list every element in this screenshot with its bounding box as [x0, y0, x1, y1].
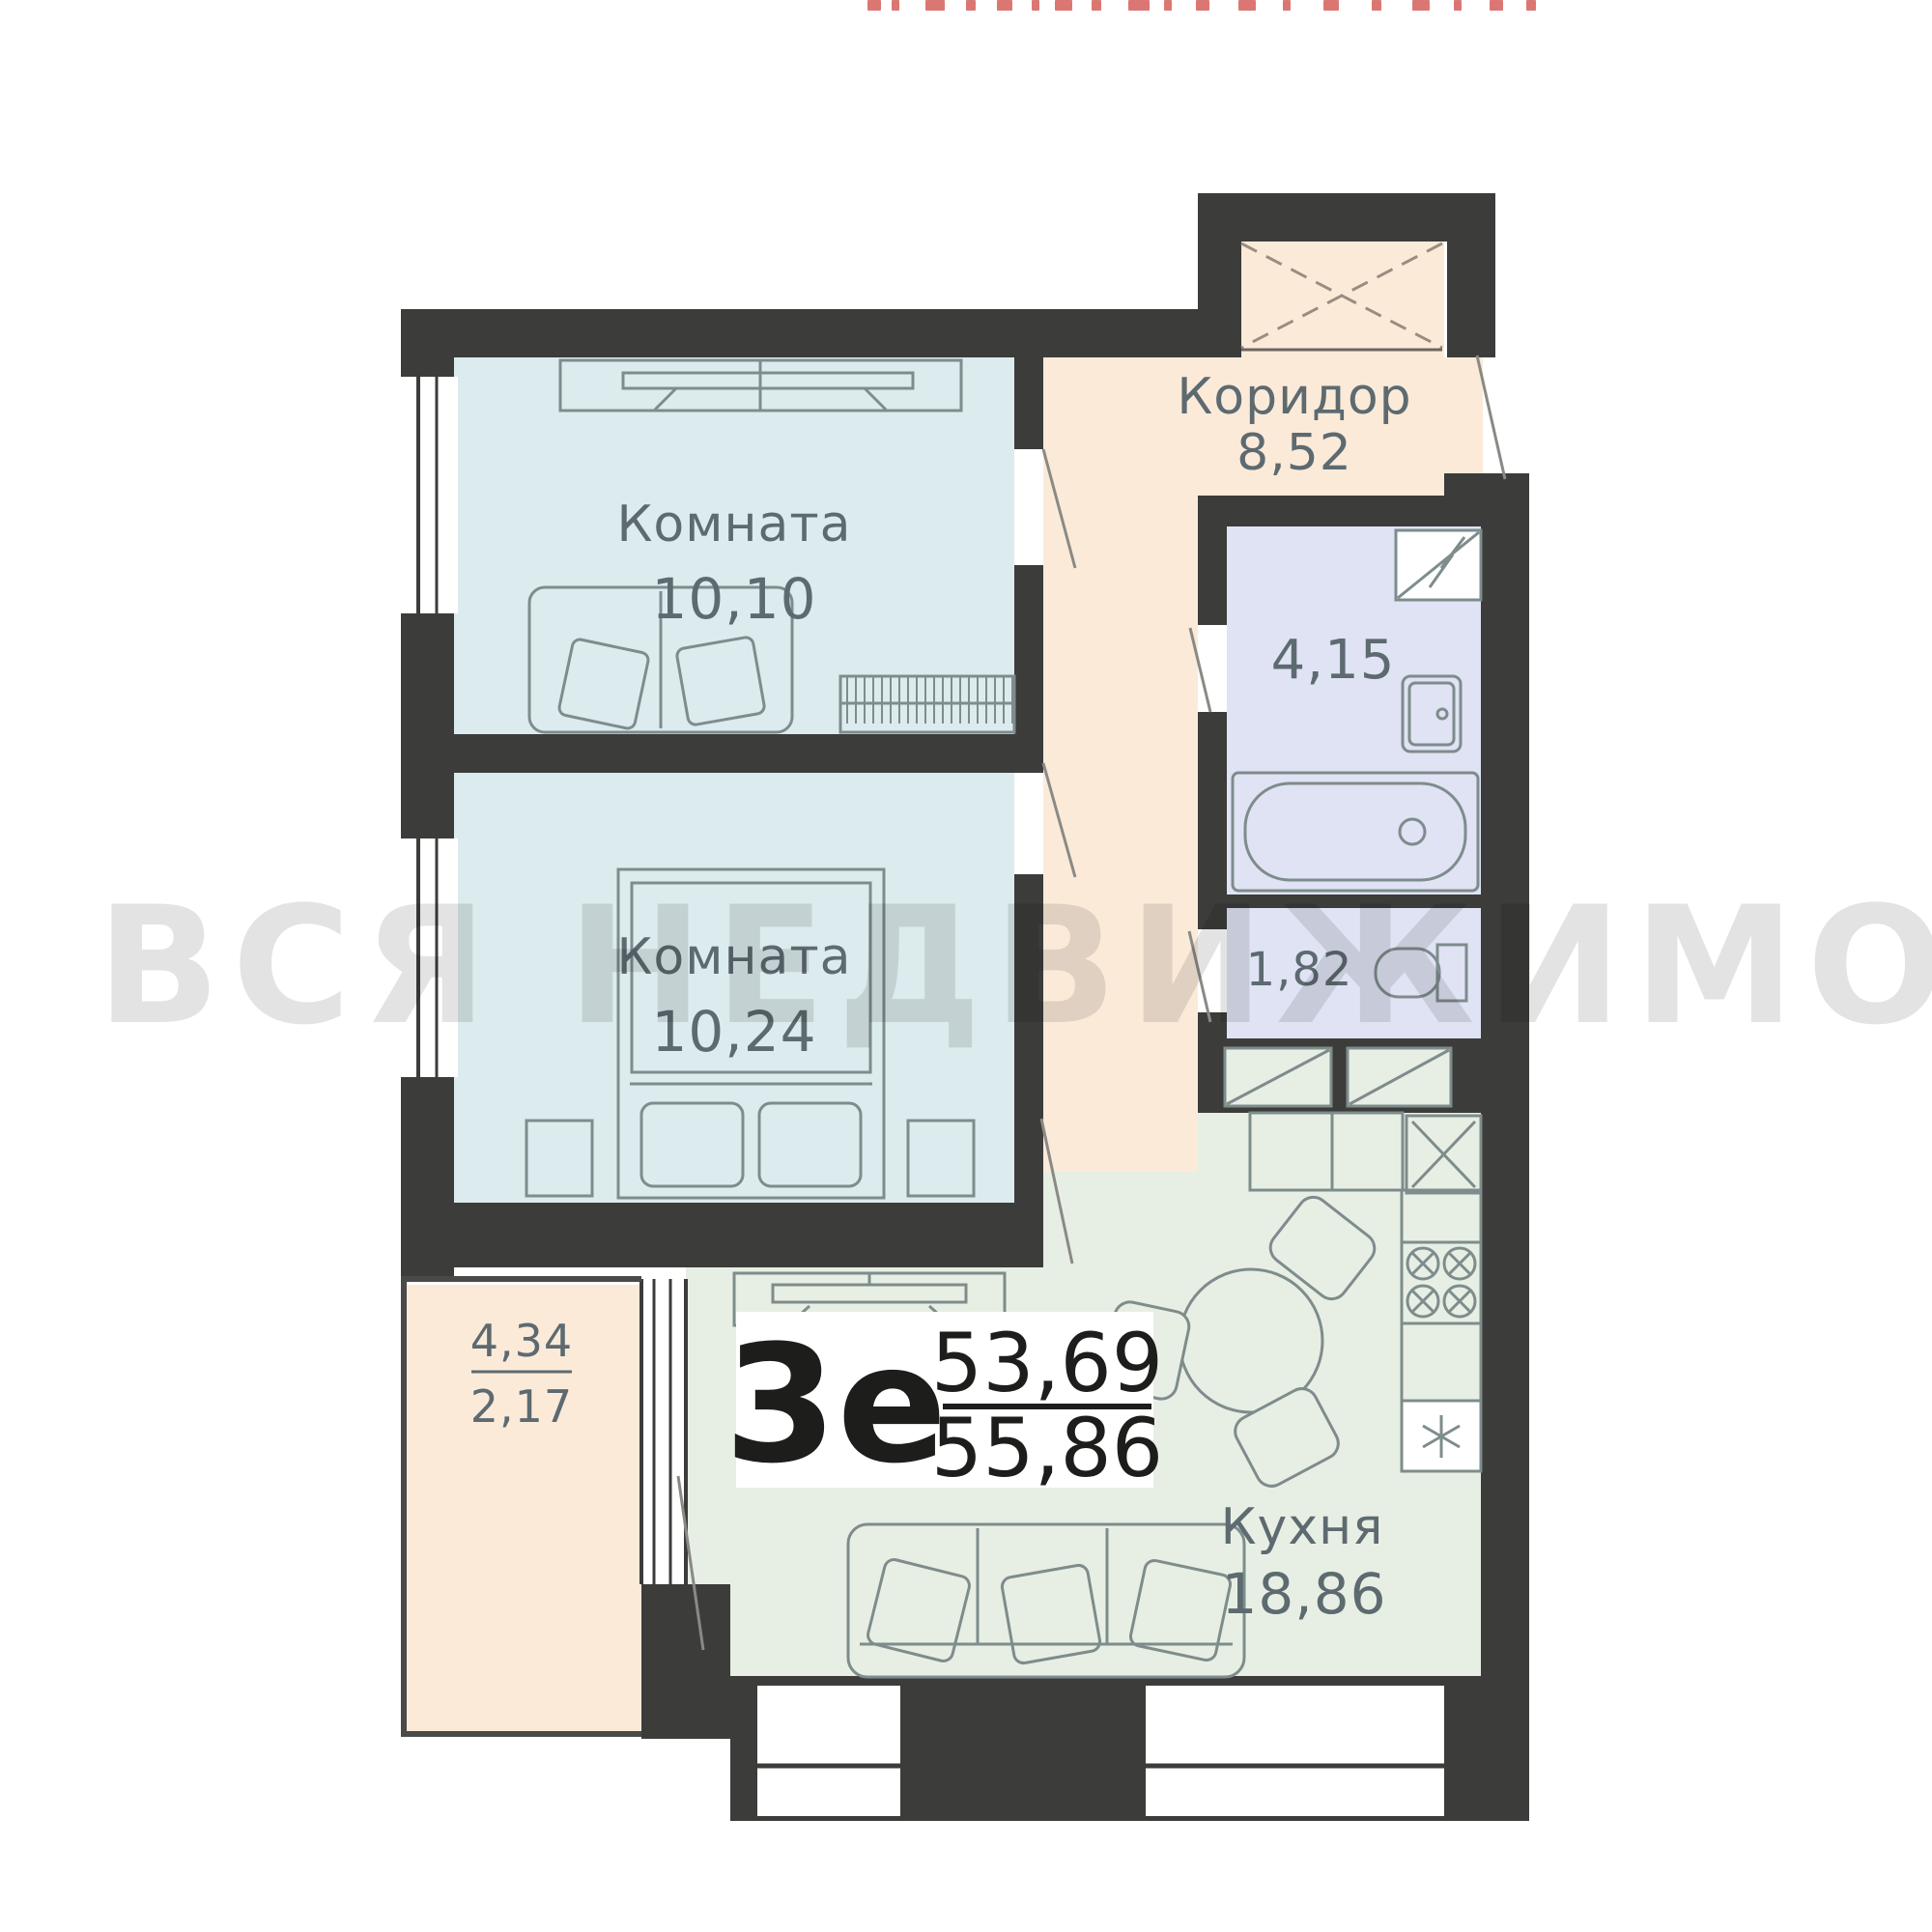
shower-icon [1396, 530, 1481, 600]
floorplan-page: Комната 10,10 Комната 10,24 Коридор 8,52… [0, 0, 1932, 1932]
cropped-red-text-fragments [0, 0, 1932, 19]
fridge-icon [1402, 1401, 1481, 1471]
window-balcony-door-band [641, 1279, 686, 1584]
window-room-top [398, 377, 458, 613]
kitchen-name: Кухня [1221, 1498, 1384, 1556]
room-top-name: Комната [617, 496, 852, 554]
watermark: ВСЯ НЕДВИЖИМОСТЬ [97, 871, 1932, 1061]
piano-icon [840, 676, 1014, 732]
balcony-upper-area: 4,34 [470, 1315, 573, 1367]
floorplan-drawing: Комната 10,10 Комната 10,24 Коридор 8,52… [0, 0, 1932, 1932]
room-top-area: 10,10 [651, 566, 816, 632]
corridor-name: Коридор [1177, 368, 1411, 426]
kitchen-area: 18,86 [1221, 1561, 1386, 1627]
window-kitchen-left [757, 1686, 900, 1816]
bathroom-area: 4,15 [1271, 629, 1396, 692]
unit-code: 3е [724, 1310, 948, 1499]
corridor-area: 8,52 [1236, 424, 1352, 482]
unit-label-box: 3е 53,69 55,86 [724, 1310, 1164, 1499]
balcony-lower-area: 2,17 [470, 1380, 573, 1433]
unit-lower-area: 55,86 [931, 1401, 1163, 1495]
unit-upper-area: 53,69 [931, 1316, 1163, 1410]
window-kitchen-right [1146, 1686, 1444, 1816]
